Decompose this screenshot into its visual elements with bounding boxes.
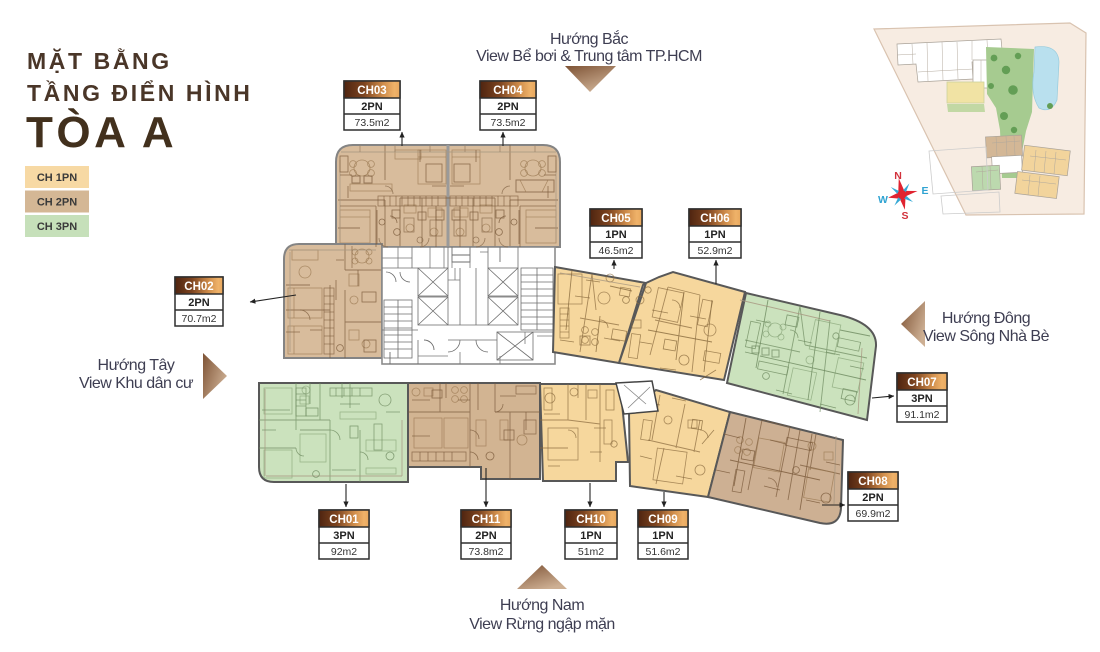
svg-text:CH09: CH09 [648,514,677,526]
svg-text:CH08: CH08 [858,476,888,488]
svg-text:TẦNG ĐIỂN HÌNH: TẦNG ĐIỂN HÌNH [27,79,253,106]
svg-text:CH03: CH03 [357,85,386,97]
svg-text:3PN: 3PN [911,393,932,405]
svg-text:3PN: 3PN [333,530,354,542]
svg-text:MẶT BẰNG: MẶT BẰNG [27,47,172,74]
svg-text:CH02: CH02 [184,281,213,293]
svg-text:92m2: 92m2 [331,546,357,558]
svg-text:View Bể bơi & Trung tâm TP.HCM: View Bể bơi & Trung tâm TP.HCM [476,47,702,65]
svg-text:73.5m2: 73.5m2 [354,117,389,129]
svg-text:2PN: 2PN [188,297,209,309]
svg-text:52.9m2: 52.9m2 [697,245,732,257]
svg-text:1PN: 1PN [605,229,626,241]
svg-text:CH 2PN: CH 2PN [37,197,77,209]
svg-text:E: E [921,185,928,197]
svg-text:CH06: CH06 [700,213,729,225]
svg-text:CH04: CH04 [493,85,523,97]
svg-text:CH05: CH05 [601,213,631,225]
svg-text:1PN: 1PN [704,229,725,241]
svg-text:Hướng Đông: Hướng Đông [942,310,1030,327]
svg-text:69.9m2: 69.9m2 [855,508,890,520]
svg-text:Hướng Nam: Hướng Nam [500,597,584,614]
svg-text:TÒA A: TÒA A [26,107,177,157]
svg-text:S: S [901,210,908,222]
svg-text:CH07: CH07 [907,377,936,389]
svg-text:CH01: CH01 [329,514,359,526]
svg-text:Hướng Tây: Hướng Tây [98,357,175,374]
svg-text:51.6m2: 51.6m2 [645,546,680,558]
svg-text:70.7m2: 70.7m2 [181,313,216,325]
svg-text:2PN: 2PN [361,101,382,113]
svg-text:1PN: 1PN [580,530,601,542]
svg-text:73.5m2: 73.5m2 [490,117,525,129]
svg-text:View Rừng ngập mặn: View Rừng ngập mặn [469,616,615,633]
svg-text:2PN: 2PN [862,492,883,504]
svg-text:View Sông Nhà Bè: View Sông Nhà Bè [923,328,1050,345]
svg-text:CH11: CH11 [472,514,501,526]
svg-text:91.1m2: 91.1m2 [904,409,939,421]
svg-text:2PN: 2PN [497,101,518,113]
svg-text:N: N [894,170,902,182]
svg-text:Hướng Bắc: Hướng Bắc [550,29,629,48]
svg-text:73.8m2: 73.8m2 [468,546,503,558]
svg-text:CH 1PN: CH 1PN [37,172,77,184]
svg-text:CH10: CH10 [576,514,605,526]
svg-text:51m2: 51m2 [578,546,604,558]
svg-text:46.5m2: 46.5m2 [598,245,633,257]
svg-text:2PN: 2PN [475,530,496,542]
svg-text:1PN: 1PN [652,530,673,542]
svg-text:CH 3PN: CH 3PN [37,221,77,233]
svg-text:View Khu dân cư: View Khu dân cư [79,375,194,392]
svg-text:W: W [878,194,888,206]
